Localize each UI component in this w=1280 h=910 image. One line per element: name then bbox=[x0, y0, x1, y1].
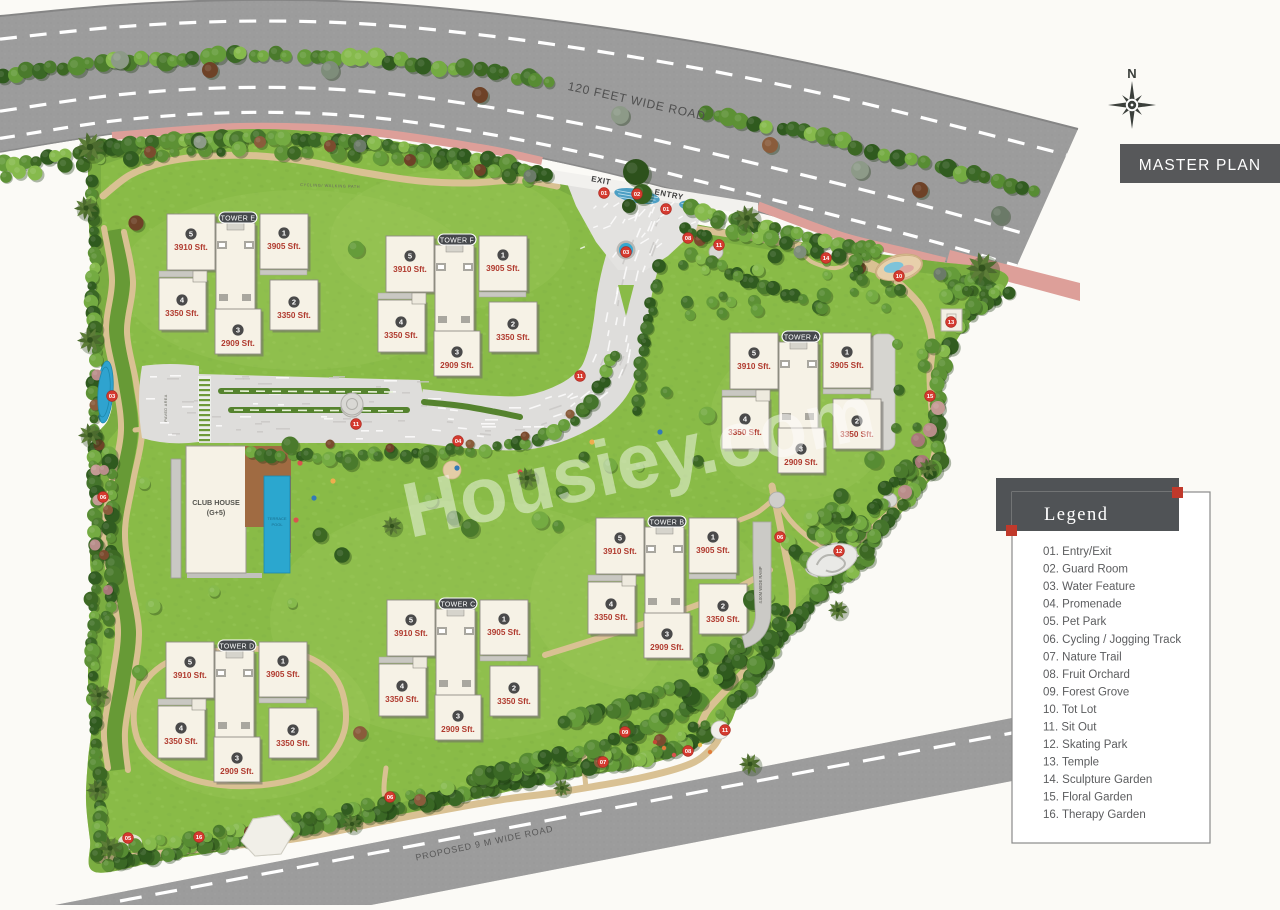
svg-text:PAVED AREA: PAVED AREA bbox=[164, 394, 168, 422]
svg-text:CLUB HOUSE: CLUB HOUSE bbox=[192, 498, 240, 507]
svg-text:06: 06 bbox=[100, 495, 107, 501]
svg-text:04. Promenade: 04. Promenade bbox=[1043, 599, 1122, 611]
svg-text:TERRACE: TERRACE bbox=[267, 516, 286, 521]
svg-text:3905 Sft.: 3905 Sft. bbox=[487, 628, 521, 637]
svg-text:16. Therapy Garden: 16. Therapy Garden bbox=[1043, 809, 1146, 821]
svg-text:04: 04 bbox=[455, 439, 462, 445]
svg-text:3350 Sft.: 3350 Sft. bbox=[384, 331, 418, 340]
svg-text:TOWER B: TOWER B bbox=[650, 519, 685, 526]
svg-text:03: 03 bbox=[623, 250, 630, 256]
svg-text:12: 12 bbox=[836, 549, 843, 555]
svg-text:08. Fruit Orchard: 08. Fruit Orchard bbox=[1043, 669, 1130, 681]
svg-text:5: 5 bbox=[752, 349, 756, 358]
svg-text:08: 08 bbox=[685, 236, 692, 242]
svg-text:3: 3 bbox=[456, 712, 460, 721]
svg-text:3905 Sft.: 3905 Sft. bbox=[266, 670, 300, 679]
svg-text:3910 Sft.: 3910 Sft. bbox=[393, 265, 427, 274]
svg-text:2909 Sft.: 2909 Sft. bbox=[220, 767, 254, 776]
svg-text:3350 Sft.: 3350 Sft. bbox=[594, 613, 628, 622]
svg-text:3350 Sft.: 3350 Sft. bbox=[276, 739, 310, 748]
svg-text:07: 07 bbox=[600, 760, 607, 766]
svg-text:14. Sculpture Garden: 14. Sculpture Garden bbox=[1043, 774, 1152, 786]
svg-text:03. Water Feature: 03. Water Feature bbox=[1043, 581, 1135, 593]
svg-text:01. Entry/Exit: 01. Entry/Exit bbox=[1043, 546, 1112, 558]
svg-text:2: 2 bbox=[721, 602, 725, 611]
svg-text:11: 11 bbox=[353, 422, 360, 428]
svg-text:POOL: POOL bbox=[271, 522, 283, 527]
svg-text:5: 5 bbox=[409, 616, 413, 625]
svg-text:N: N bbox=[1127, 66, 1136, 81]
svg-text:TOWER A: TOWER A bbox=[784, 334, 818, 341]
svg-text:2909 Sft.: 2909 Sft. bbox=[221, 339, 255, 348]
svg-text:5: 5 bbox=[188, 658, 192, 667]
svg-text:06. Cycling / Jogging Track: 06. Cycling / Jogging Track bbox=[1043, 634, 1181, 646]
svg-text:2909 Sft.: 2909 Sft. bbox=[650, 643, 684, 652]
svg-text:02: 02 bbox=[634, 192, 641, 198]
svg-text:2909 Sft.: 2909 Sft. bbox=[441, 725, 475, 734]
svg-text:3905 Sft.: 3905 Sft. bbox=[486, 264, 520, 273]
svg-text:1: 1 bbox=[501, 251, 505, 260]
svg-text:11: 11 bbox=[577, 374, 584, 380]
svg-text:06: 06 bbox=[387, 795, 394, 801]
svg-text:3905 Sft.: 3905 Sft. bbox=[267, 242, 301, 251]
svg-text:1: 1 bbox=[502, 615, 506, 624]
svg-text:3905 Sft.: 3905 Sft. bbox=[696, 546, 730, 555]
svg-text:03: 03 bbox=[109, 394, 116, 400]
svg-text:1: 1 bbox=[711, 533, 715, 542]
svg-text:2: 2 bbox=[512, 684, 516, 693]
svg-text:11. Sit Out: 11. Sit Out bbox=[1043, 722, 1097, 734]
svg-text:TOWER D: TOWER D bbox=[219, 643, 254, 650]
svg-text:(G+5): (G+5) bbox=[207, 508, 226, 517]
svg-text:TOWER F: TOWER F bbox=[440, 237, 474, 244]
svg-text:09. Forest Grove: 09. Forest Grove bbox=[1043, 686, 1129, 698]
svg-text:08: 08 bbox=[685, 749, 692, 755]
svg-text:3350 Sft.: 3350 Sft. bbox=[165, 309, 199, 318]
svg-text:09: 09 bbox=[622, 730, 629, 736]
svg-text:13. Temple: 13. Temple bbox=[1043, 757, 1099, 769]
svg-text:2: 2 bbox=[292, 298, 296, 307]
svg-text:06: 06 bbox=[777, 535, 784, 541]
svg-text:3: 3 bbox=[455, 348, 459, 357]
svg-text:11: 11 bbox=[716, 243, 723, 249]
svg-text:MASTER PLAN: MASTER PLAN bbox=[1139, 157, 1262, 174]
svg-text:3: 3 bbox=[665, 630, 669, 639]
svg-text:15. Floral Garden: 15. Floral Garden bbox=[1043, 792, 1133, 804]
svg-text:3350 Sft.: 3350 Sft. bbox=[164, 737, 198, 746]
svg-text:12. Skating Park: 12. Skating Park bbox=[1043, 739, 1128, 751]
svg-text:01: 01 bbox=[663, 207, 670, 213]
svg-text:10. Tot Lot: 10. Tot Lot bbox=[1043, 704, 1097, 716]
svg-text:3350 Sft.: 3350 Sft. bbox=[385, 695, 419, 704]
svg-text:1: 1 bbox=[281, 657, 285, 666]
svg-text:05: 05 bbox=[125, 836, 132, 842]
svg-text:TOWER C: TOWER C bbox=[440, 601, 475, 608]
svg-text:3910 Sft.: 3910 Sft. bbox=[174, 243, 208, 252]
svg-text:01: 01 bbox=[601, 191, 608, 197]
svg-text:02. Guard Room: 02. Guard Room bbox=[1043, 564, 1128, 576]
svg-text:1: 1 bbox=[282, 229, 286, 238]
svg-text:3350 Sft.: 3350 Sft. bbox=[706, 615, 740, 624]
svg-text:13: 13 bbox=[948, 320, 955, 326]
svg-text:1: 1 bbox=[845, 348, 849, 357]
svg-text:11: 11 bbox=[722, 728, 729, 734]
svg-text:10: 10 bbox=[896, 274, 903, 280]
svg-text:3350 Sft.: 3350 Sft. bbox=[496, 333, 530, 342]
svg-text:2909 Sft.: 2909 Sft. bbox=[440, 361, 474, 370]
svg-text:16: 16 bbox=[196, 835, 203, 841]
svg-text:TOWER E: TOWER E bbox=[221, 215, 256, 222]
svg-text:3910 Sft.: 3910 Sft. bbox=[603, 547, 637, 556]
svg-text:07. Nature Trail: 07. Nature Trail bbox=[1043, 651, 1122, 663]
svg-text:5: 5 bbox=[189, 230, 193, 239]
svg-text:3350 Sft.: 3350 Sft. bbox=[497, 697, 531, 706]
svg-text:5: 5 bbox=[618, 534, 622, 543]
svg-text:2: 2 bbox=[511, 320, 515, 329]
svg-text:4.00M WIDE RAMP: 4.00M WIDE RAMP bbox=[758, 566, 763, 603]
svg-text:3350 Sft.: 3350 Sft. bbox=[277, 311, 311, 320]
svg-text:3: 3 bbox=[236, 326, 240, 335]
svg-text:14: 14 bbox=[823, 256, 830, 262]
svg-text:05. Pet Park: 05. Pet Park bbox=[1043, 616, 1107, 628]
svg-text:3910 Sft.: 3910 Sft. bbox=[394, 629, 428, 638]
svg-text:2: 2 bbox=[291, 726, 295, 735]
svg-text:Legend: Legend bbox=[1044, 505, 1108, 525]
svg-text:15: 15 bbox=[927, 394, 934, 400]
svg-text:3910 Sft.: 3910 Sft. bbox=[173, 671, 207, 680]
svg-text:3: 3 bbox=[235, 754, 239, 763]
svg-text:3910 Sft.: 3910 Sft. bbox=[737, 362, 771, 371]
svg-text:5: 5 bbox=[408, 252, 412, 261]
